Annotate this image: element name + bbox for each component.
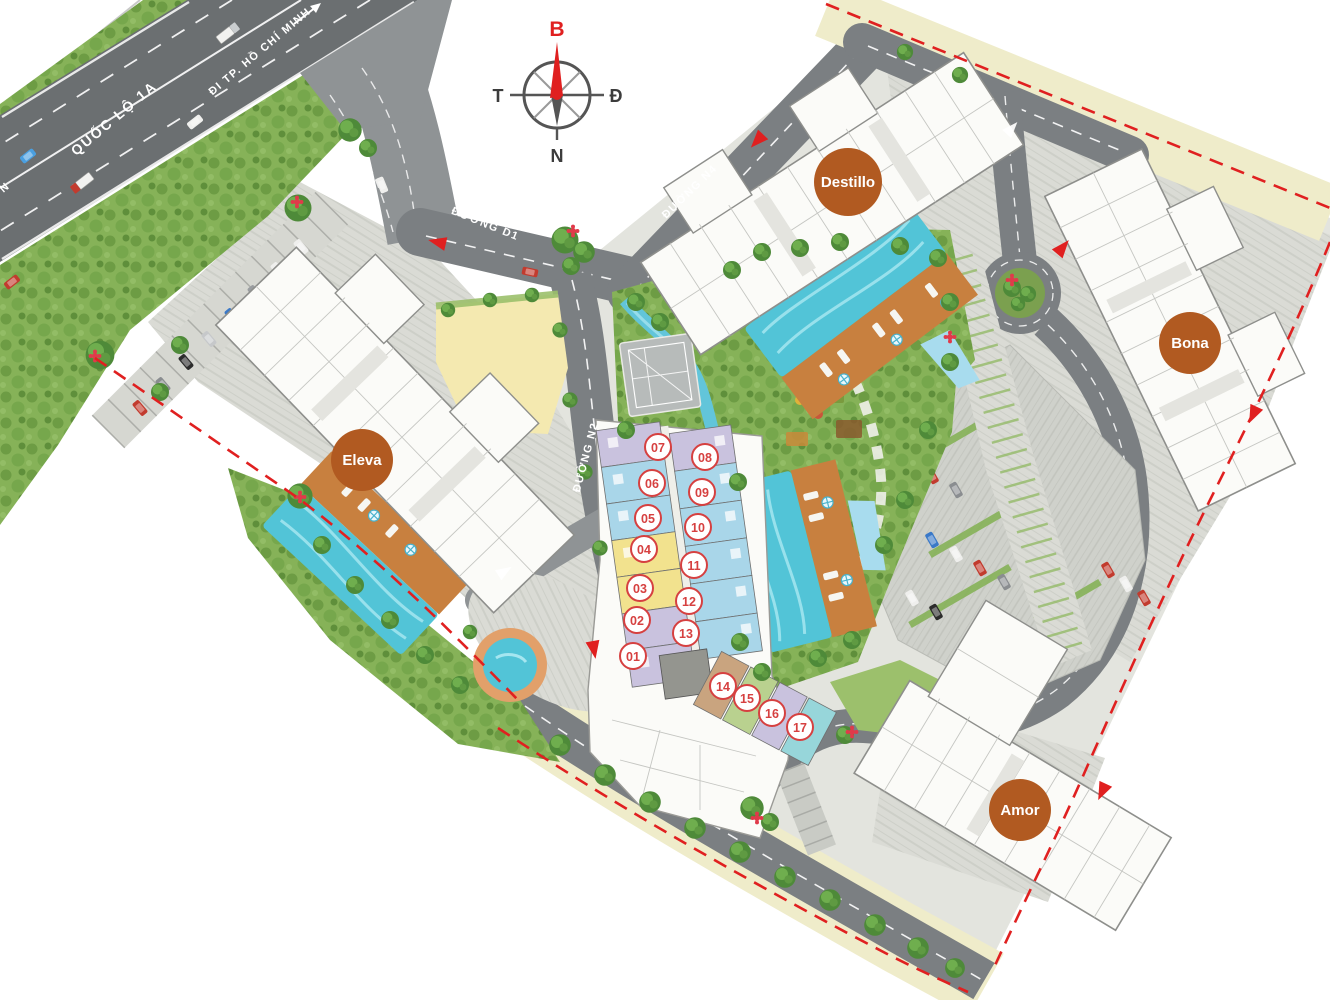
unit-badge-06[interactable]: 06: [639, 470, 665, 496]
tree-icon: [441, 303, 455, 317]
tree-icon: [684, 817, 706, 839]
svg-text:13: 13: [679, 627, 693, 641]
tree-icon: [627, 293, 645, 311]
tree-icon: [897, 44, 913, 60]
unit-badge-07[interactable]: 07: [645, 434, 671, 460]
tree-icon: [723, 261, 741, 279]
tree-icon: [313, 536, 331, 554]
unit-badge-08[interactable]: 08: [692, 444, 718, 470]
unit-badge-09[interactable]: 09: [689, 479, 715, 505]
svg-text:08: 08: [698, 451, 712, 465]
unit-badge-10[interactable]: 10: [685, 514, 711, 540]
svg-text:14: 14: [716, 680, 730, 694]
unit-badge-04[interactable]: 04: [631, 536, 657, 562]
svg-text:Destillo: Destillo: [821, 174, 875, 191]
svg-text:17: 17: [793, 721, 807, 735]
tree-icon: [338, 118, 361, 141]
tree-icon: [359, 139, 377, 157]
tree-icon: [729, 841, 751, 863]
tree-icon: [562, 392, 577, 407]
svg-text:03: 03: [633, 582, 647, 596]
svg-text:04: 04: [637, 543, 651, 557]
tree-icon: [945, 958, 965, 978]
tree-icon: [941, 293, 959, 311]
tree-icon: [171, 336, 189, 354]
tree-icon: [831, 233, 849, 251]
tree-icon: [929, 249, 947, 267]
unit-badge-02[interactable]: 02: [624, 607, 650, 633]
unit-badge-16[interactable]: 16: [759, 700, 785, 726]
tree-icon: [639, 791, 661, 813]
tree-icon: [463, 625, 477, 639]
tree-icon: [594, 764, 616, 786]
unit-badge-14[interactable]: 14: [710, 673, 736, 699]
tree-icon: [843, 631, 861, 649]
svg-text:Eleva: Eleva: [342, 452, 382, 469]
tower-badge-eleva[interactable]: Eleva: [331, 429, 393, 491]
tree-icon: [819, 889, 841, 911]
tree-icon: [416, 646, 434, 664]
tower-badge-destillo[interactable]: Destillo: [814, 148, 882, 216]
tree-icon: [562, 257, 580, 275]
tree-icon: [753, 243, 771, 261]
unit-badge-15[interactable]: 15: [734, 685, 760, 711]
svg-text:10: 10: [691, 521, 705, 535]
compass-north-label: B: [549, 18, 564, 41]
tree-icon: [451, 676, 469, 694]
tower-badge-bona[interactable]: Bona: [1159, 312, 1221, 374]
unit-badge-17[interactable]: 17: [787, 714, 813, 740]
tree-icon: [381, 611, 399, 629]
tree-icon: [774, 866, 796, 888]
compass-south-label: N: [551, 146, 564, 166]
tree-icon: [896, 491, 914, 509]
svg-text:09: 09: [695, 486, 709, 500]
unit-badge-01[interactable]: 01: [620, 643, 646, 669]
unit-badge-12[interactable]: 12: [676, 588, 702, 614]
tree-icon: [891, 237, 909, 255]
tree-icon: [729, 473, 747, 491]
tree-icon: [809, 649, 827, 667]
tree-icon: [919, 421, 937, 439]
svg-text:16: 16: [765, 707, 779, 721]
tree-icon: [525, 288, 539, 302]
site-plan-canvas: QUỐC LỘ 1A ĐI TP. HỒ CHÍ MINH N ĐƯỜNG D1…: [0, 0, 1330, 1000]
tree-icon: [483, 293, 497, 307]
svg-text:01: 01: [626, 650, 640, 664]
sports-court: [619, 333, 701, 416]
tree-icon: [875, 536, 893, 554]
tree-icon: [952, 67, 968, 83]
svg-text:15: 15: [740, 692, 754, 706]
compass-east-label: Đ: [610, 86, 623, 106]
unit-badge-13[interactable]: 13: [673, 620, 699, 646]
svg-text:12: 12: [682, 595, 696, 609]
tree-icon: [941, 353, 959, 371]
svg-text:11: 11: [687, 559, 700, 573]
tree-icon: [864, 914, 886, 936]
svg-text:Bona: Bona: [1171, 335, 1209, 352]
unit-badge-03[interactable]: 03: [627, 575, 653, 601]
tree-icon: [761, 813, 779, 831]
tree-icon: [791, 239, 809, 257]
tree-icon: [346, 576, 364, 594]
tree-icon: [549, 734, 571, 756]
tree-icon: [1011, 297, 1025, 311]
master-plan-map: QUỐC LỘ 1A ĐI TP. HỒ CHÍ MINH N ĐƯỜNG D1…: [0, 0, 1330, 1000]
tree-icon: [617, 421, 635, 439]
compass-west-label: T: [493, 86, 504, 106]
tree-icon: [907, 937, 929, 959]
svg-text:06: 06: [645, 477, 659, 491]
tree-icon: [552, 322, 567, 337]
svg-text:07: 07: [651, 441, 665, 455]
svg-text:Amor: Amor: [1000, 802, 1039, 819]
unit-badge-11[interactable]: 11: [681, 552, 707, 578]
svg-text:05: 05: [641, 512, 655, 526]
tree-icon: [731, 633, 749, 651]
unit-badge-05[interactable]: 05: [635, 505, 661, 531]
tree-icon: [753, 663, 771, 681]
tree-icon: [651, 313, 669, 331]
tower-badge-amor[interactable]: Amor: [989, 779, 1051, 841]
svg-text:02: 02: [630, 614, 644, 628]
tree-icon: [592, 540, 607, 555]
